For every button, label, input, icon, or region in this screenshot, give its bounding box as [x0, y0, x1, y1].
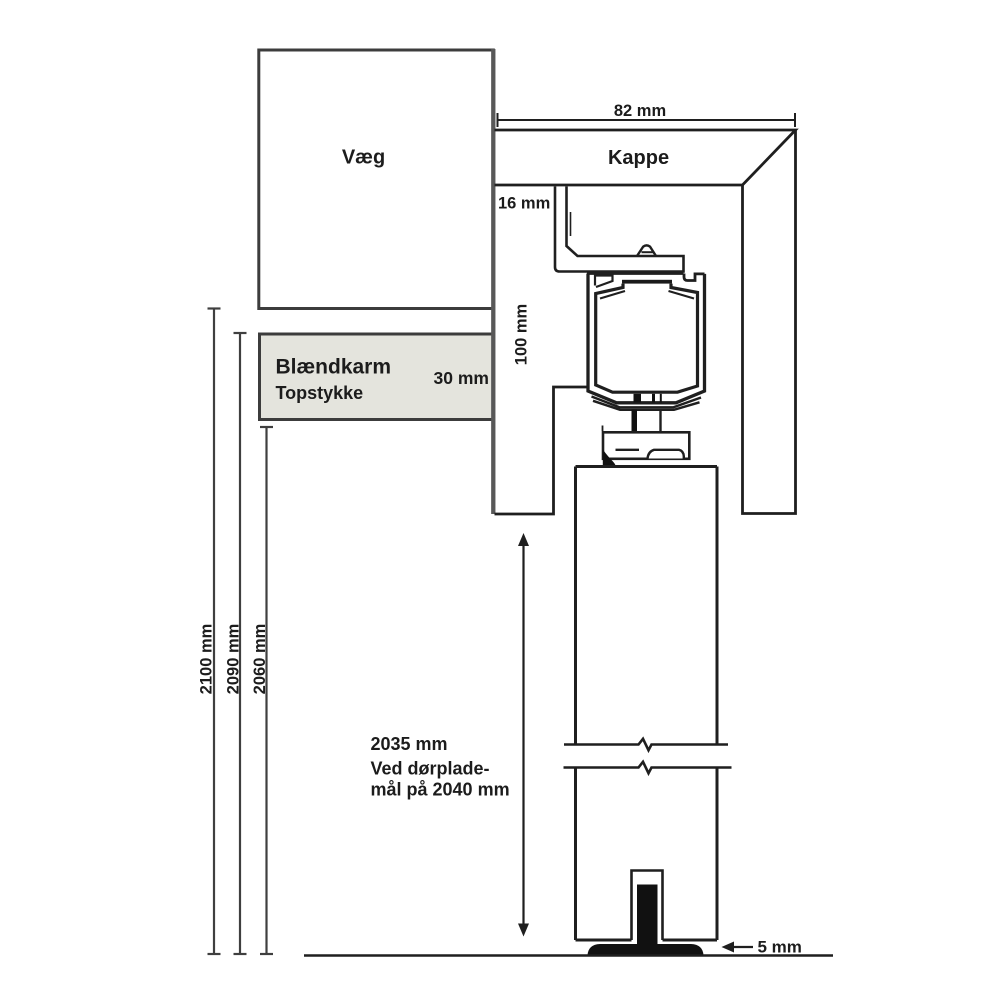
- svg-text:Topstykke: Topstykke: [276, 383, 364, 403]
- svg-text:82 mm: 82 mm: [614, 102, 666, 120]
- svg-text:30 mm: 30 mm: [434, 368, 489, 388]
- svg-text:16 mm: 16 mm: [498, 195, 550, 213]
- svg-text:2090 mm: 2090 mm: [225, 624, 243, 695]
- svg-text:Kappe: Kappe: [608, 147, 669, 169]
- svg-text:2035 mm: 2035 mm: [371, 734, 448, 754]
- svg-text:Væg: Væg: [342, 147, 385, 169]
- svg-text:mål på 2040 mm: mål på 2040 mm: [371, 780, 510, 800]
- svg-text:5 mm: 5 mm: [758, 938, 802, 957]
- svg-text:2060 mm: 2060 mm: [251, 624, 269, 695]
- svg-text:Blændkarm: Blændkarm: [276, 356, 392, 379]
- svg-text:100 mm: 100 mm: [513, 304, 531, 365]
- svg-text:2100 mm: 2100 mm: [198, 624, 216, 695]
- svg-text:Ved dørplade-: Ved dørplade-: [371, 759, 490, 779]
